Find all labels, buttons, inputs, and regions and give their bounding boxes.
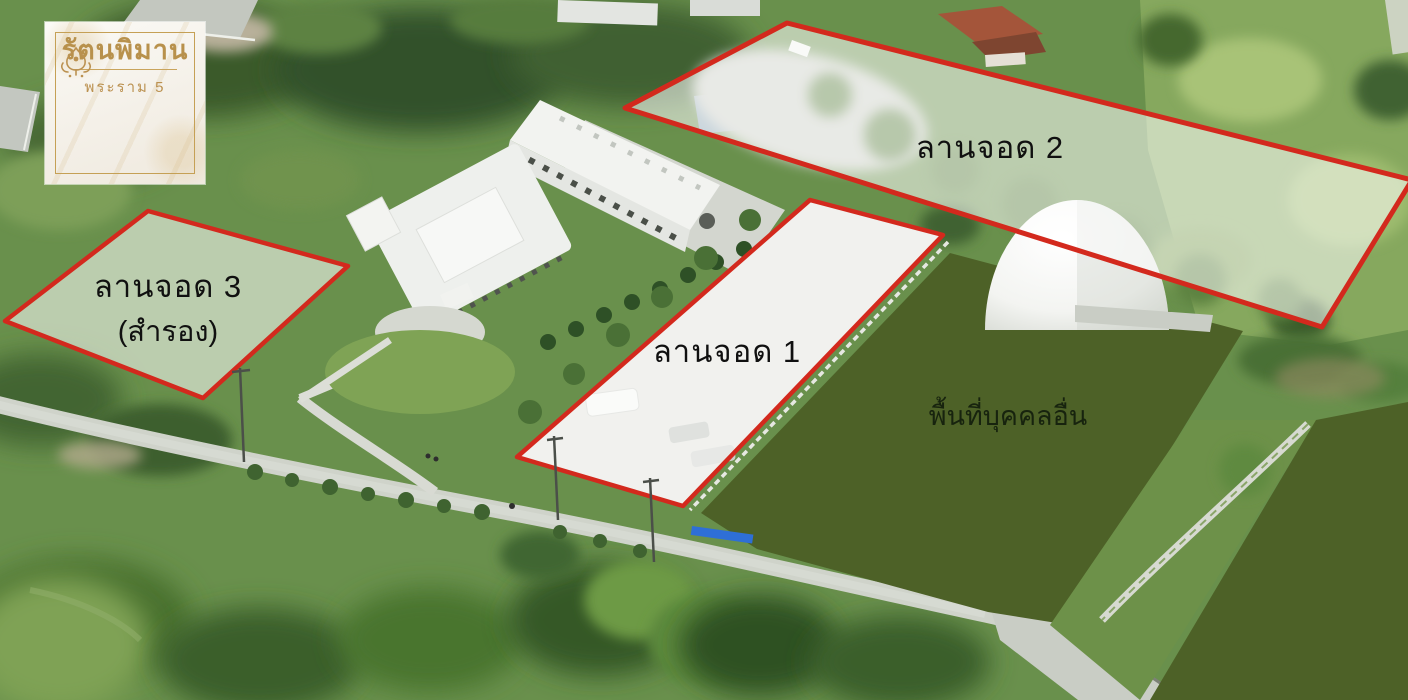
label-parking-3: ลานจอด 3 [94, 269, 242, 304]
front-lawn [325, 330, 515, 414]
aerial-photo-canvas: ลานจอด 2 ลานจอด 1 ลานจอด 3 (สำรอง) พื้นท… [0, 0, 1408, 700]
label-parking-3-reserve: (สำรอง) [118, 316, 218, 348]
label-parking-1: ลานจอด 1 [653, 334, 801, 369]
label-other-area: พื้นที่บุคคลอื่น [929, 396, 1088, 433]
label-parking-2: ลานจอด 2 [916, 130, 1064, 165]
logo-subtitle: พระราม 5 [85, 75, 166, 99]
parked-car [699, 213, 715, 229]
aerial-site-map: ลานจอด 2 ลานจอด 1 ลานจอด 3 (สำรอง) พื้นท… [0, 0, 1408, 700]
brand-logo: รัตนพิมาน พระราม 5 [45, 22, 205, 184]
damask-ornament-icon [56, 45, 96, 79]
logo-frame: รัตนพิมาน พระราม 5 [55, 32, 195, 174]
